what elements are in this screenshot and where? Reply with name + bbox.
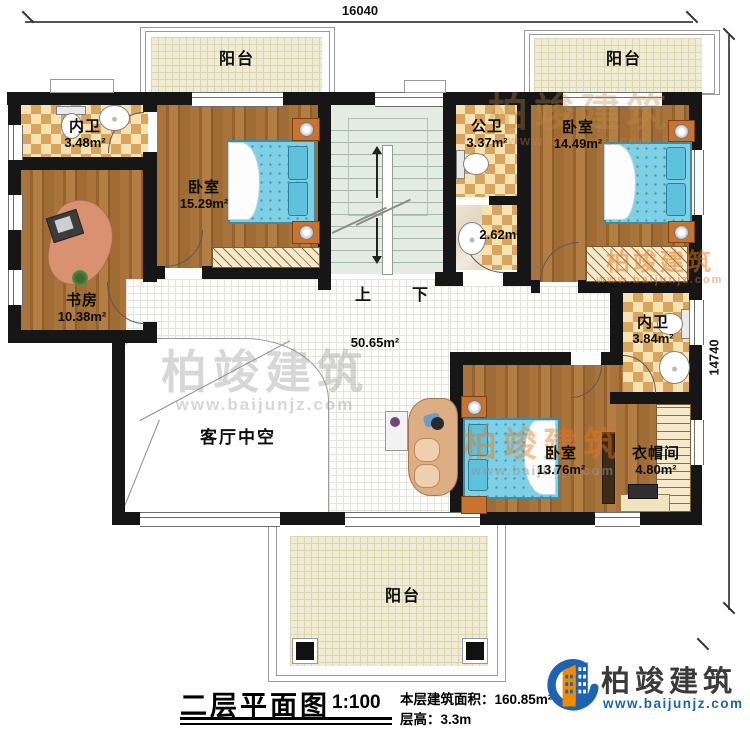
wall — [610, 392, 702, 404]
sofa-cushion — [414, 438, 440, 462]
wall — [112, 330, 125, 525]
balcony-column — [293, 639, 317, 663]
wardrobe — [586, 246, 688, 282]
stair-arrow-line — [376, 218, 378, 256]
sliding-door — [563, 92, 662, 107]
room-name: 内卫 — [608, 315, 698, 332]
person-head — [431, 417, 444, 430]
room-name: 书房 — [37, 293, 127, 310]
pillow — [468, 424, 488, 456]
room-label-bedroom-top-left: 卧室 15.29m² — [159, 180, 249, 211]
pillow — [288, 146, 308, 180]
flower-icon — [390, 417, 400, 427]
dimension-line-right — [728, 35, 730, 610]
room-label-balcony-top-right: 阳台 — [579, 51, 669, 69]
room-name: 阳台 — [358, 588, 448, 606]
room-name: 衣帽间 — [611, 446, 701, 463]
room-area: 4.80m² — [611, 463, 701, 478]
room-label-living-area: 50.65m² — [330, 336, 420, 351]
wall — [443, 92, 563, 105]
dimension-tick — [697, 638, 710, 651]
wall — [8, 230, 21, 270]
hallway-floor — [450, 286, 623, 352]
room-area: 10.38m² — [37, 310, 127, 325]
wall — [7, 92, 192, 105]
title-underline — [180, 717, 392, 725]
room-area: 50.65m² — [330, 336, 420, 351]
room-area: 3.48m² — [40, 136, 130, 151]
dimension-width-label: 16040 — [320, 3, 400, 18]
pillow — [666, 183, 686, 216]
wall — [480, 512, 595, 525]
nightstand — [292, 118, 320, 141]
window-sill — [404, 80, 446, 93]
sliding-door — [345, 512, 480, 527]
room-label-balcony-top-left: 阳台 — [192, 51, 282, 69]
stairs-up-label: 上 — [355, 281, 371, 305]
wall — [640, 512, 702, 525]
window-sill — [50, 79, 114, 93]
room-area: 13.76m² — [516, 463, 606, 478]
room-label-bath-right: 内卫 3.84m² — [608, 315, 698, 346]
wall — [8, 330, 157, 343]
window — [140, 512, 280, 527]
wall — [157, 266, 165, 279]
wall — [531, 280, 540, 293]
plant-icon — [72, 270, 88, 286]
brand-logo: 柏竣建筑 www.baijunjz.com — [543, 652, 743, 724]
wall — [143, 152, 157, 282]
room-label-study: 书房 10.38m² — [37, 293, 127, 324]
room-name: 阳台 — [192, 51, 282, 69]
room-label-bath-top-left: 内卫 3.48m² — [40, 119, 130, 150]
stair-arrow-line — [376, 152, 378, 198]
room-name: 阳台 — [579, 51, 669, 69]
window — [8, 195, 23, 230]
room-name: 客厅中空 — [173, 428, 303, 447]
room-label-bedroom-bottom: 卧室 13.76m² — [516, 446, 606, 477]
room-area: 14.49m² — [533, 137, 623, 152]
brand-name: 柏竣建筑 — [601, 658, 737, 700]
dimension-height-label: 14740 — [707, 332, 722, 384]
window — [375, 92, 443, 107]
sliding-door — [192, 92, 283, 107]
wall — [489, 196, 517, 205]
room-area: 15.29m² — [159, 197, 249, 212]
wall — [8, 92, 21, 125]
wall — [143, 322, 157, 343]
balcony-column — [463, 639, 487, 663]
stair-arrow-down — [372, 256, 382, 264]
wall — [143, 92, 157, 112]
brand-website: www.baijunjz.com — [603, 696, 744, 711]
floor-area-note: 本层建筑面积：160.85m² — [400, 688, 552, 708]
stair-arrow-up — [372, 146, 382, 154]
wall — [8, 157, 157, 170]
wall — [280, 512, 345, 525]
wall — [601, 352, 623, 365]
nightstand — [461, 396, 487, 418]
room-label-bedroom-top-right: 卧室 14.49m² — [533, 120, 623, 151]
pillow — [468, 459, 488, 491]
pillow — [288, 182, 308, 216]
room-area: 3.84m² — [608, 332, 698, 347]
room-name: 公卫 — [442, 119, 532, 136]
room-name: 卧室 — [533, 120, 623, 137]
toilet-icon — [463, 153, 489, 175]
nightstand — [292, 221, 320, 244]
room-name: 内卫 — [40, 119, 130, 136]
dimension-line-top — [25, 21, 693, 23]
pillow — [666, 147, 686, 180]
nightstand — [461, 496, 487, 514]
wall — [503, 272, 531, 286]
sink-icon — [659, 351, 690, 384]
nightstand — [668, 120, 695, 142]
room-label-balcony-bottom: 阳台 — [358, 588, 448, 606]
nightstand — [668, 221, 695, 243]
living-void-shape — [118, 338, 329, 513]
wardrobe — [212, 247, 320, 268]
window — [8, 270, 23, 305]
room-label-public-bath-lower: 2.62m² — [455, 228, 545, 243]
window — [595, 512, 640, 527]
tv-icon — [628, 484, 658, 499]
floor-plan-page: 16040 14740 — [0, 0, 750, 732]
room-label-cloakroom: 衣帽间 4.80m² — [611, 446, 701, 477]
room-area: 3.37m² — [442, 136, 532, 151]
room-label-living-void: 客厅中空 — [173, 428, 303, 447]
sofa-cushion — [414, 464, 440, 488]
room-name: 卧室 — [159, 180, 249, 197]
window — [8, 125, 23, 160]
room-area: 2.62m² — [455, 228, 545, 243]
stairs-down-label: 下 — [412, 281, 428, 305]
room-name: 卧室 — [516, 446, 606, 463]
room-label-public-bath: 公卫 3.37m² — [442, 119, 532, 150]
wall — [450, 352, 571, 365]
floor-height-note: 层高：3.3m — [400, 708, 471, 728]
brand-logo-icon — [543, 654, 599, 716]
plan-scale: 1:100 — [332, 692, 381, 714]
wall — [435, 272, 463, 286]
